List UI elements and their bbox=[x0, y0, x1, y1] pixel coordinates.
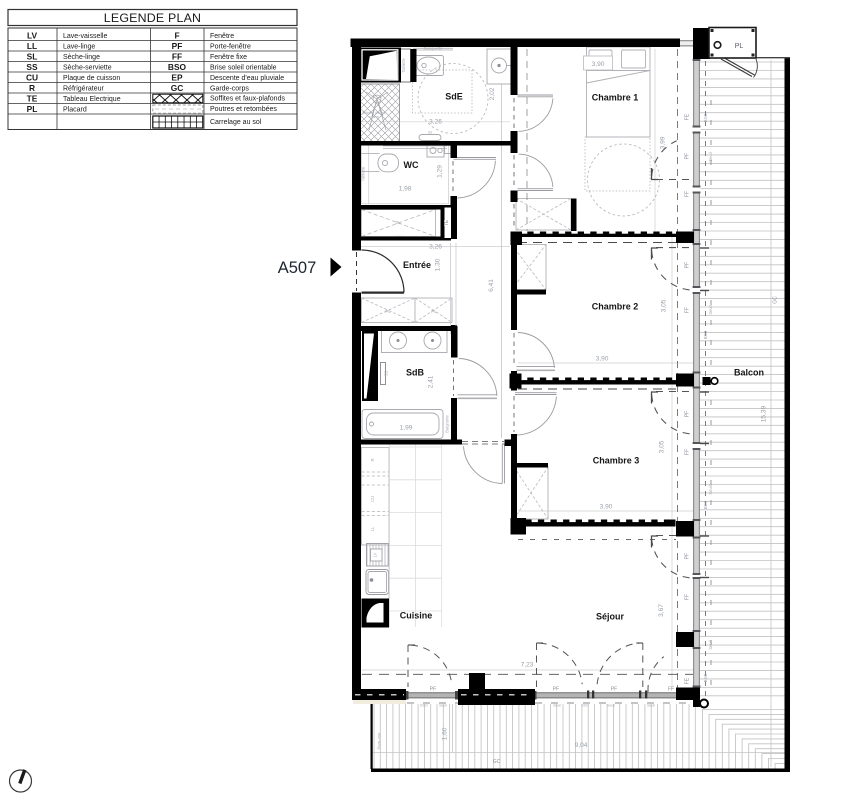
svg-text:TE: TE bbox=[27, 93, 38, 103]
svg-text:1,99: 1,99 bbox=[400, 425, 413, 432]
svg-text:Chambre 1: Chambre 1 bbox=[592, 93, 639, 103]
svg-text:Seuil: Seuil bbox=[708, 485, 713, 494]
svg-text:Seuil: Seuil bbox=[647, 704, 655, 708]
svg-text:1,30: 1,30 bbox=[435, 258, 442, 271]
svg-text:BSO: BSO bbox=[703, 500, 708, 510]
svg-text:3,26: 3,26 bbox=[429, 119, 442, 126]
svg-text:PF: PF bbox=[172, 41, 183, 51]
svg-text:FF: FF bbox=[685, 191, 691, 197]
svg-text:A507: A507 bbox=[278, 259, 317, 277]
svg-text:WC: WC bbox=[404, 160, 419, 170]
svg-text:PL: PL bbox=[27, 104, 38, 114]
svg-text:FE: FE bbox=[685, 677, 691, 684]
svg-text:Seuil: Seuil bbox=[439, 704, 447, 708]
svg-text:R: R bbox=[29, 83, 35, 93]
svg-text:Cuisine: Cuisine bbox=[400, 611, 433, 621]
svg-text:LV: LV bbox=[27, 30, 37, 40]
svg-text:Carrelage au sol: Carrelage au sol bbox=[210, 119, 262, 126]
svg-text:7,23: 7,23 bbox=[521, 662, 534, 669]
svg-text:Sèche-serviette: Sèche-serviette bbox=[63, 64, 112, 71]
svg-text:EP: EP bbox=[171, 72, 183, 82]
svg-text:BSO: BSO bbox=[420, 704, 428, 708]
svg-text:GC: GC bbox=[171, 83, 184, 93]
svg-text:6,41: 6,41 bbox=[488, 279, 495, 292]
svg-text:3,67: 3,67 bbox=[658, 604, 665, 617]
svg-text:SS: SS bbox=[26, 62, 38, 72]
svg-text:TE: TE bbox=[444, 219, 450, 226]
svg-text:Garde-corps: Garde-corps bbox=[210, 85, 249, 92]
svg-text:PF: PF bbox=[685, 153, 691, 159]
svg-text:3,90: 3,90 bbox=[592, 61, 605, 68]
svg-text:3,05: 3,05 bbox=[659, 440, 666, 453]
svg-text:PF: PF bbox=[553, 686, 559, 692]
svg-text:Tablette: Tablette bbox=[361, 166, 366, 181]
svg-text:FF: FF bbox=[668, 686, 674, 692]
svg-text:Seuil: Seuil bbox=[708, 305, 713, 314]
svg-text:Fenêtre fixe: Fenêtre fixe bbox=[210, 54, 247, 61]
svg-text:LL: LL bbox=[27, 41, 37, 51]
svg-text:FF: FF bbox=[685, 307, 691, 313]
svg-text:Plaque de cuisson: Plaque de cuisson bbox=[63, 75, 120, 82]
svg-text:BSO: BSO bbox=[703, 113, 708, 123]
svg-text:SS: SS bbox=[428, 131, 433, 135]
svg-text:FF: FF bbox=[685, 594, 691, 600]
svg-text:Entrée: Entrée bbox=[403, 260, 431, 270]
svg-text:F: F bbox=[174, 30, 179, 40]
svg-text:FF: FF bbox=[685, 449, 691, 455]
svg-text:CU: CU bbox=[26, 72, 38, 82]
svg-text:Pare-vue: Pare-vue bbox=[377, 732, 382, 750]
svg-text:1,60: 1,60 bbox=[442, 727, 449, 740]
svg-text:PF: PF bbox=[685, 262, 691, 268]
svg-text:BSO: BSO bbox=[703, 330, 708, 340]
svg-text:PF: PF bbox=[430, 686, 436, 692]
svg-text:1,98: 1,98 bbox=[399, 186, 412, 193]
svg-text:1,29: 1,29 bbox=[437, 165, 444, 178]
svg-text:2,41: 2,41 bbox=[428, 375, 435, 388]
svg-text:Tablette: Tablette bbox=[401, 57, 406, 72]
svg-text:LL: LL bbox=[370, 526, 375, 531]
svg-text:SS: SS bbox=[384, 371, 389, 377]
svg-text:3,26: 3,26 bbox=[429, 244, 442, 251]
svg-text:Placard: Placard bbox=[63, 106, 87, 113]
svg-text:3,05: 3,05 bbox=[661, 299, 668, 312]
svg-text:Sèche-linge: Sèche-linge bbox=[63, 54, 100, 61]
svg-text:Soffites et faux-plafonds: Soffites et faux-plafonds bbox=[210, 96, 285, 103]
svg-text:BSO: BSO bbox=[581, 704, 589, 708]
svg-text:R: R bbox=[370, 458, 375, 461]
svg-text:Lave-vaisselle: Lave-vaisselle bbox=[63, 33, 107, 40]
svg-text:Seuil: Seuil bbox=[708, 152, 713, 161]
svg-text:15,39: 15,39 bbox=[761, 405, 768, 422]
svg-text:Chambre 3: Chambre 3 bbox=[593, 456, 640, 466]
svg-text:PF: PF bbox=[685, 553, 691, 559]
svg-text:3,99: 3,99 bbox=[660, 136, 667, 149]
svg-text:Réfrigérateur: Réfrigérateur bbox=[63, 85, 105, 92]
svg-text:Fenêtre: Fenêtre bbox=[210, 33, 234, 40]
svg-text:Baignoire: Baignoire bbox=[445, 414, 450, 432]
svg-text:PF: PF bbox=[611, 686, 617, 692]
svg-text:Porte-fenêtre: Porte-fenêtre bbox=[210, 43, 251, 50]
svg-text:Séjour: Séjour bbox=[596, 612, 625, 622]
svg-text:LV: LV bbox=[373, 552, 378, 557]
svg-text:BSO: BSO bbox=[703, 673, 708, 683]
svg-text:GC: GC bbox=[773, 296, 779, 304]
svg-text:GC: GC bbox=[493, 759, 501, 765]
svg-text:3,90: 3,90 bbox=[596, 356, 609, 363]
svg-text:Chambre 2: Chambre 2 bbox=[592, 302, 639, 312]
svg-text:Tableau Electrique: Tableau Electrique bbox=[63, 96, 121, 103]
svg-text:FE: FE bbox=[685, 113, 691, 120]
svg-text:SL: SL bbox=[395, 220, 401, 225]
svg-text:CU: CU bbox=[370, 496, 375, 502]
svg-text:SdE: SdE bbox=[445, 92, 463, 102]
svg-text:LEGENDE PLAN: LEGENDE PLAN bbox=[104, 11, 201, 25]
svg-text:SdB: SdB bbox=[406, 368, 425, 378]
svg-text:3,90: 3,90 bbox=[600, 504, 613, 511]
svg-text:PL: PL bbox=[735, 43, 744, 50]
svg-text:Seuil: Seuil bbox=[553, 704, 561, 708]
svg-text:Balcon: Balcon bbox=[734, 368, 764, 378]
svg-text:PL: PL bbox=[431, 309, 437, 314]
svg-text:2,02: 2,02 bbox=[489, 87, 496, 100]
svg-text:Seuil: Seuil bbox=[607, 704, 615, 708]
svg-text:Brise soleil orientable: Brise soleil orientable bbox=[210, 64, 277, 71]
svg-text:Descente d'eau pluviale: Descente d'eau pluviale bbox=[210, 75, 284, 82]
svg-text:Poutres et retombées: Poutres et retombées bbox=[210, 106, 277, 113]
svg-text:Seuil: Seuil bbox=[708, 640, 713, 649]
svg-text:PL: PL bbox=[385, 309, 391, 314]
svg-text:Lave-linge: Lave-linge bbox=[63, 43, 95, 50]
svg-text:robinet: robinet bbox=[369, 115, 379, 119]
svg-text:PF: PF bbox=[685, 411, 691, 417]
svg-text:FF: FF bbox=[172, 51, 182, 61]
svg-text:BSO: BSO bbox=[168, 62, 187, 72]
svg-text:9,04: 9,04 bbox=[575, 742, 588, 749]
svg-text:SL: SL bbox=[27, 51, 38, 61]
